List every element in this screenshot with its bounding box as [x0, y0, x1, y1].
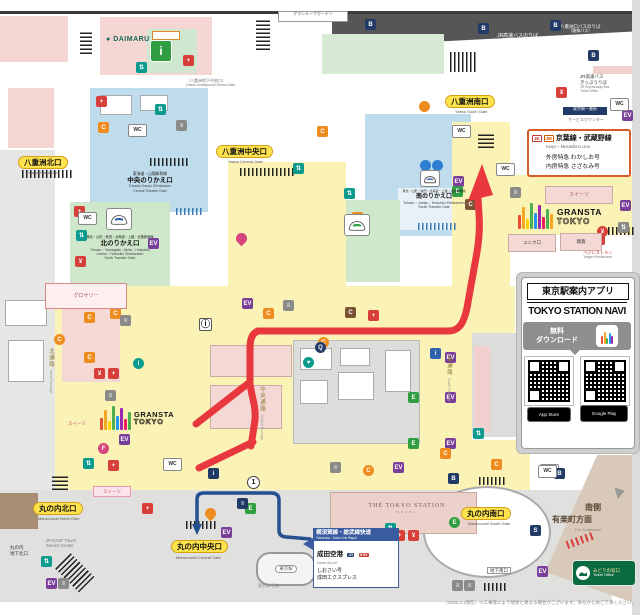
restroom-icon: WC [452, 125, 471, 138]
shop-cluster-pink [210, 345, 292, 377]
midori-madoguchi-icon [576, 566, 590, 580]
green-building-zone [322, 34, 444, 74]
passage-central-en: Central Passage [260, 415, 264, 441]
shop-vegan-restaurant: ベジレストラン Vegan Restaurant [583, 250, 612, 260]
coin-locker-icon: C [345, 307, 356, 318]
gate-marunouchi-south: 丸の内南口 [461, 507, 511, 520]
shop-uniqlo: ユニクロ [508, 234, 556, 252]
south-transfer-en: South Transfer Gate [398, 205, 470, 209]
yaesu-bus-label: 八重洲口バスのりば （路線バス） [560, 24, 601, 34]
ticket-machine-icon: ¥ [556, 87, 567, 98]
stairs-icon: ≡ [452, 580, 463, 591]
gate-yaesu-north: 八重洲北口 [18, 156, 68, 169]
central-transfer-gate: 東海道・山陽新幹線 中央のりかえ口 Tokaido-Sanyo Shinkans… [100, 172, 200, 193]
escalator-icon: ⇅ [136, 62, 147, 73]
app-download-band: 無料 ダウンロード [523, 322, 631, 350]
shinkansen-icon [106, 208, 132, 230]
coin-locker-icon: C [440, 448, 451, 459]
escalator-icon: ⇅ [155, 104, 166, 115]
station-statue-label: 東京駅 石像 [258, 584, 279, 589]
ticket-office-box [152, 31, 180, 40]
coin-locker-icon: C [363, 465, 374, 476]
shop-sweets-right: スイーツ [545, 186, 613, 204]
app-free-label: 無料 [536, 327, 578, 336]
bus-stop-icon: B [365, 19, 376, 30]
station-oval-label: 東京駅 [275, 565, 297, 573]
keiyo-en: Keiyo・Musashino Line [546, 144, 626, 150]
jr-expressway-bus-label: JR高速バスのりば JR Expressway Bus Terminal [495, 33, 540, 43]
app-name: TOKYO STATION NAVI [522, 306, 632, 318]
information-icon: i [133, 358, 144, 369]
qr-code-googleplay [580, 356, 630, 406]
stairs-icon: ≡ [176, 120, 187, 131]
stairs-hatch [256, 20, 270, 50]
bus-stop-icon: B [550, 20, 561, 31]
line-badge-nex: N'EX [359, 553, 369, 557]
ticket-gate-marunouchi-central [186, 521, 216, 529]
restroom-icon: WC [128, 124, 147, 137]
passage-north-label: 北通路 North Passage [48, 348, 54, 393]
restroom-icon: WC [496, 163, 515, 176]
train-shiosai: しおさい号 [317, 567, 395, 574]
line-badge-musashino: JM [544, 135, 554, 142]
information-icon: i [208, 468, 219, 479]
coin-locker-icon: C [54, 334, 65, 345]
first-aid-icon: + [142, 503, 153, 514]
keiyo-train-2: 内房特急 さざなみ号 [546, 161, 626, 170]
gransta-bars-icon [100, 406, 131, 430]
ticket-gate-central-transfer [150, 158, 188, 166]
north-transfer-gate: 東北・山形・秋田・北海道・上越・北陸新幹線 北のりかえ口 Tohoku・Yama… [72, 236, 168, 260]
ichibangai-label: 東京駅一番街 [563, 107, 607, 115]
yokosuka-box-pointer [303, 538, 313, 550]
stairs-icon: ≡ [105, 390, 116, 401]
elevator-icon: EV [221, 527, 232, 538]
info-icon: i [150, 40, 172, 62]
exit-icon: E [449, 517, 460, 528]
escalator-icon: ⇅ [41, 556, 52, 567]
passage-north-jp: 北通路 [48, 348, 54, 368]
daimaru-logo: ● DAIMARU [106, 36, 150, 44]
nursing-room-icon: F [98, 443, 109, 454]
stairs-hatch [80, 30, 92, 54]
shop-block [385, 350, 411, 392]
restroom-icon: WC [163, 458, 182, 471]
elevator-icon: EV [242, 298, 253, 309]
gate-outside-gray-left [0, 150, 55, 502]
escalator-icon: ⇅ [344, 188, 355, 199]
restroom-icon: WC [538, 465, 557, 478]
platform-hatch-blue [176, 208, 202, 215]
north-transfer-en: North Transfer Gate [72, 256, 168, 260]
first-aid-icon: + [108, 368, 119, 379]
ticket-gate-yaesu-central [240, 168, 294, 176]
midori-en: Ticket Office [593, 573, 620, 578]
keiyo-line-box: JE JM 京葉線・武蔵野線 Keiyo・Musashino Line 外房特急… [527, 129, 631, 177]
bus-stop-icon: B [588, 50, 599, 61]
midori-madoguchi-badge: みどりの窓口 Ticket Office [572, 560, 636, 586]
stairs-icon: ≡ [464, 580, 475, 591]
shop-block [300, 380, 328, 404]
yokosuka-sobu-box: 横須賀線・総武線快速 Yokosuka・Sobu Line Rapid 成田空港… [313, 528, 399, 588]
coin-locker-icon: C [317, 126, 328, 137]
stairs-icon: ≡ [330, 462, 341, 473]
gate-marunouchi-north: 丸の内北口 [33, 502, 83, 515]
elevator-icon: EV [622, 110, 633, 121]
narita-dest-en: Narita Airport [317, 561, 395, 565]
stairs-icon: ≡ [510, 187, 521, 198]
googleplay-badge: Google Play [580, 405, 628, 422]
gate-marunouchi-central: 丸の内中央口 [171, 540, 228, 553]
restroom-icon: WC [610, 98, 629, 111]
gate-yaesu-south-en: Yaesu South Gate [455, 109, 487, 114]
chika-south-gate-label: 地下南口 [487, 567, 511, 574]
gate-yaesu-central-en: Yaesu Central Gate [228, 159, 263, 164]
tokyo-station-map: i グランルーフガーデン ● DAIMARU JR高速バスのりば JR Expr… [0, 0, 640, 615]
station-building-oval: 東京駅 [256, 552, 316, 586]
ticket-gate-marunouchi-south [479, 477, 505, 485]
narita-dest: 成田空港 [317, 551, 343, 558]
stairs-icon: ≡ [237, 498, 248, 509]
keiyo-title: 京葉線・武蔵野線 [556, 133, 612, 143]
passage-south-en: South Passage [447, 378, 451, 402]
ticket-gate-yaesu-south [478, 132, 494, 148]
ticket-machine-icon: ¥ [408, 530, 419, 541]
shop-block [340, 348, 370, 366]
bus-stop-icon: B [478, 23, 489, 34]
granroof-garden-label: グランルーフガーデン [278, 11, 348, 22]
first-aid-icon: + [108, 460, 119, 471]
yaesu-underground-gate-label: （八重洲地下中央口） (Yaesu Underground Central Ga… [186, 78, 235, 87]
stairs-hatch [450, 52, 476, 72]
coin-locker-icon: C [84, 352, 95, 363]
first-aid-icon: + [368, 310, 379, 321]
train-narita-express: 成田エクスプレス [317, 574, 395, 581]
gransta-sub: TOKYO [134, 419, 174, 426]
gransta-logo-right: GRANSTA TOKYO [518, 203, 602, 229]
elevator-icon: EV [537, 566, 548, 577]
coin-locker-icon: C [84, 312, 95, 323]
app-band-tail [570, 350, 580, 355]
line-badge-jo: JO [347, 553, 354, 557]
yurakucho-en: For Yurakucho [575, 528, 601, 533]
south-transfer-gate: 東北・山形・秋田・北海道・上越・北陸新幹線 南のりかえ口 Tohoku・Joet… [398, 190, 470, 209]
app-title-box: 東京駅案内アプリ [527, 283, 629, 300]
shop-block [5, 300, 47, 326]
south-transfer-green [338, 200, 400, 282]
keiyo-street-pink [474, 346, 490, 432]
elevator-icon: EV [119, 434, 130, 445]
passage-central-jp: 中央通路 [259, 386, 265, 412]
appstore-badge: App Store [527, 407, 571, 422]
gransta-name: GRANSTA [134, 410, 174, 419]
coin-locker-icon: C [263, 308, 274, 319]
concourse-yellow [228, 162, 346, 342]
elevator-icon: EV [46, 578, 57, 589]
coin-locker-icon: C [491, 459, 502, 470]
gate-yaesu-south: 八重洲南口 [445, 95, 495, 108]
yokosuka-en: Yokosuka・Sobu Line Rapid [316, 537, 396, 541]
app-divider [527, 302, 627, 303]
ticket-gate-marunouchi-north [52, 476, 68, 490]
gate-marunouchi-central-en: Marunouchi Central Gate [176, 555, 221, 560]
app-icon [596, 325, 618, 347]
gate-yaesu-north-en: Yaesu North Gate [28, 170, 60, 175]
keiyo-train-1: 外房特急 わかしお号 [546, 152, 626, 161]
elevator-icon: EV [393, 462, 404, 473]
shinkansen-icon [344, 214, 370, 236]
map-disclaimer: （2025.3.1現在）※工事等により現状と異なる場合がございます。あらかじめご… [0, 600, 636, 605]
elevator-icon: EV [620, 200, 631, 211]
central-transfer-en: Central Transfer Gate [100, 189, 200, 193]
gransta-bars-icon [518, 203, 553, 229]
yurakucho-label: 有楽町方面 [552, 515, 592, 525]
exit-icon: E [408, 438, 419, 449]
info-search-icon: Q [315, 342, 326, 353]
central-transfer-label: 中央のりかえ口 [100, 177, 200, 185]
shinkansen-icon [420, 170, 440, 187]
south-transfer-label: 南のりかえ口 [398, 194, 470, 201]
escalator-icon: ⇅ [618, 222, 629, 233]
information-icon: ⓘ [199, 318, 212, 331]
bus-ticket-office-label: JR高速バス きっぷうりば JR Expressway Bus Ticket O… [580, 74, 609, 93]
bus-stop-icon: B [448, 473, 459, 484]
escalator-icon: ⇅ [293, 163, 304, 174]
gate-marunouchi-south-en: Marunouchi South Gate [468, 521, 510, 526]
escalator-icon: ⇅ [83, 458, 94, 469]
daimaru-label: DAIMARU [113, 36, 150, 43]
stairs-hatch [484, 583, 508, 591]
north-transfer-label: 北のりかえ口 [72, 240, 168, 248]
shop-block [338, 372, 374, 400]
meeting-point-icon: ♥ [303, 357, 314, 368]
stairs-icon: ≡ [120, 315, 131, 326]
building-brown [0, 493, 38, 529]
ticket-machine-icon: ¥ [94, 368, 105, 379]
shop-zakka: 雑貨 [560, 233, 602, 251]
gate-yaesu-central: 八重洲中央口 [216, 145, 273, 158]
passage-central-label: 中央通路 Central Passage [259, 386, 265, 440]
shop-grocery: グロサリー [45, 283, 127, 309]
shop-sweets-small: スイーツ [68, 421, 86, 426]
shop-cluster-pink [210, 385, 282, 429]
first-aid-icon: + [183, 55, 194, 66]
shop-block [8, 340, 44, 382]
qr-code-appstore [524, 356, 574, 406]
gransta-name: GRANSTA [557, 207, 602, 217]
first-aid-icon: + [96, 96, 107, 107]
escalator-icon: ⇅ [473, 428, 484, 439]
passage-south-label: 南通路 South Passage [446, 356, 452, 402]
hotel-label: THE TOKYO STATION HOTEL [352, 503, 462, 514]
gate-marunouchi-north-en: Marunouchi North Gate [38, 516, 80, 521]
gransta-logo-center: GRANSTA TOKYO [100, 406, 174, 430]
gransta-sub: TOKYO [557, 217, 602, 226]
information-icon: i [430, 348, 441, 359]
service-counter-label: サービスカウンター [568, 118, 604, 123]
passage-north-en: North Passage [49, 370, 53, 393]
station-office-icon: S [530, 525, 541, 536]
stairs-icon: ≡ [283, 300, 294, 311]
south-side-label: 南側 [585, 503, 601, 513]
passage-south-jp: 南通路 [446, 356, 452, 376]
exit-icon: E [408, 392, 419, 403]
line-badge-keiyo: JE [532, 135, 542, 142]
app-download-label: ダウンロード [536, 336, 578, 345]
coin-locker-icon: C [98, 122, 109, 133]
chika-north-gate-label: 丸の内 地下北口 [10, 545, 28, 557]
platform-hatch-blue [418, 223, 458, 230]
travel-service-center-label: JR EAST Travel Service Center [46, 538, 76, 549]
meeting-point-icon [419, 101, 430, 112]
shop-zone-pink [8, 88, 54, 148]
restroom-icon: WC [78, 212, 97, 225]
platform-number-icon: 1 [247, 476, 260, 489]
shop-sweets-strip: スイーツ [93, 486, 131, 497]
shop-zone-pink [0, 16, 68, 62]
stairs-icon: ≡ [58, 578, 69, 589]
